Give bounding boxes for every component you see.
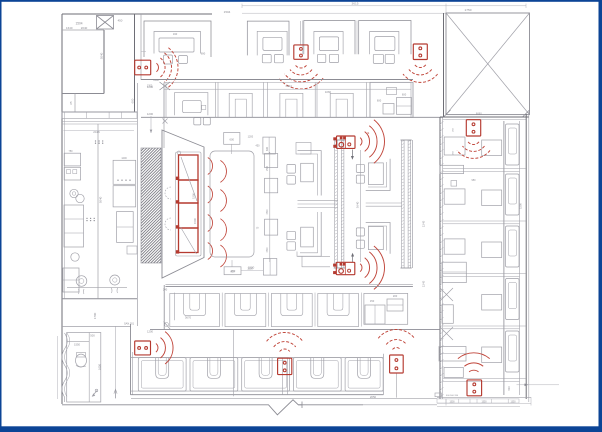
svg-text:500 500 330: 500 500 330	[446, 395, 459, 397]
svg-text:3040: 3040	[99, 196, 103, 203]
svg-text:200: 200	[393, 294, 398, 298]
svg-text:500: 500	[90, 334, 95, 338]
svg-text:1750: 1750	[465, 8, 472, 12]
svg-text:1064: 1064	[285, 84, 292, 88]
svg-text:1200: 1200	[248, 135, 254, 138]
svg-text:600: 600	[230, 138, 235, 142]
svg-text:1200: 1200	[147, 330, 153, 334]
svg-text:450: 450	[256, 145, 261, 148]
svg-text:1500: 1500	[248, 266, 255, 270]
svg-text:920: 920	[508, 386, 511, 391]
svg-text:600: 600	[402, 93, 407, 97]
svg-text:2040: 2040	[81, 26, 88, 30]
svg-text:190: 190	[173, 32, 178, 36]
svg-text:450: 450	[118, 19, 123, 23]
svg-text:150: 150	[231, 269, 236, 273]
svg-text:1500: 1500	[267, 165, 269, 171]
svg-text:600: 600	[131, 98, 135, 103]
svg-text:3670: 3670	[185, 316, 192, 320]
svg-text:600: 600	[266, 146, 269, 151]
svg-text:1500: 1500	[267, 209, 269, 215]
svg-text:1200: 1200	[147, 112, 154, 116]
svg-text:3615: 3615	[352, 2, 359, 6]
svg-text:3040: 3040	[100, 52, 104, 59]
svg-text:750: 750	[69, 150, 74, 153]
svg-text:SAN.301: SAN.301	[124, 323, 135, 326]
svg-text:240: 240	[163, 288, 168, 292]
svg-text:1500: 1500	[519, 203, 523, 209]
svg-text:950: 950	[472, 179, 477, 182]
svg-text:1050: 1050	[98, 364, 102, 370]
svg-text:2050: 2050	[370, 395, 377, 399]
svg-text:65: 65	[69, 101, 73, 105]
svg-text:600: 600	[377, 99, 382, 103]
svg-text:690: 690	[201, 52, 206, 56]
svg-text:1245: 1245	[422, 280, 426, 287]
svg-text:1504: 1504	[224, 10, 231, 14]
svg-text:1550: 1550	[74, 343, 80, 347]
svg-text:1500: 1500	[267, 247, 269, 253]
svg-text:1200: 1200	[147, 85, 154, 89]
svg-text:1245: 1245	[422, 220, 426, 227]
svg-text:6060: 6060	[476, 112, 482, 116]
svg-text:1500: 1500	[192, 193, 196, 199]
svg-text:1700: 1700	[93, 312, 97, 319]
svg-text:1640: 1640	[66, 26, 73, 30]
svg-text:1500: 1500	[193, 218, 197, 224]
svg-text:150: 150	[370, 299, 375, 303]
svg-text:3640: 3640	[356, 201, 360, 208]
svg-text:1200: 1200	[121, 157, 127, 160]
